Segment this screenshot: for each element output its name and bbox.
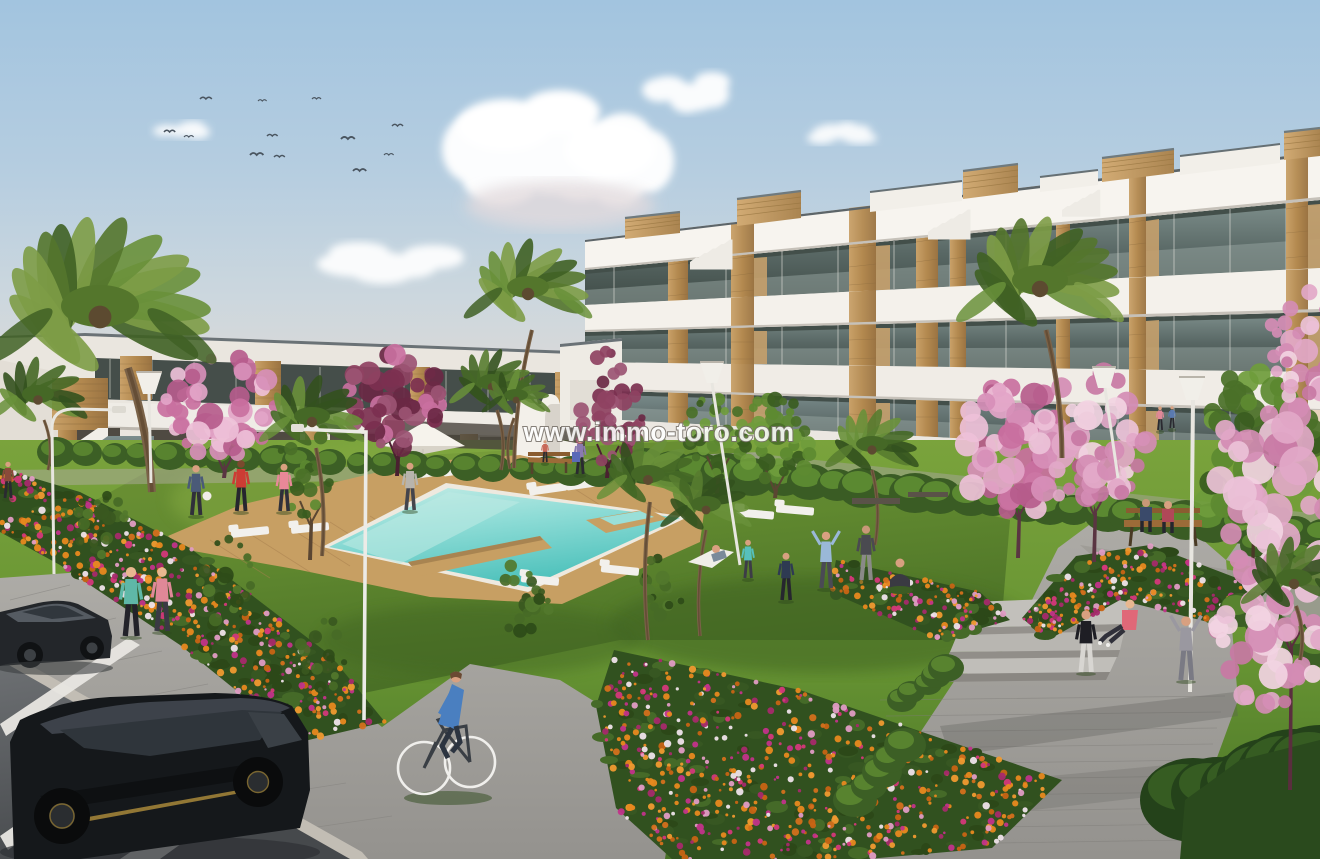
svg-text:www.immo-toro.com: www.immo-toro.com bbox=[522, 417, 794, 447]
